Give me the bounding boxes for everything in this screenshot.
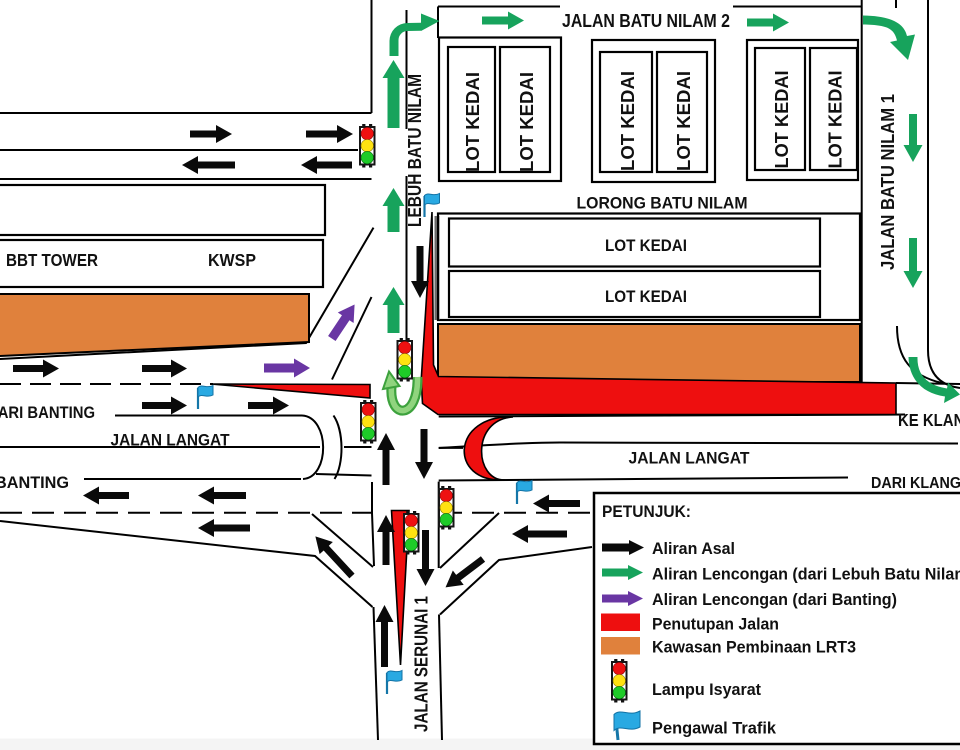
svg-text:Pengawal Trafik: Pengawal Trafik [652, 719, 777, 738]
svg-text:JALAN SERUNAI 1: JALAN SERUNAI 1 [412, 596, 432, 732]
svg-text:LEBUH BATU NILAM: LEBUH BATU NILAM [405, 74, 425, 227]
svg-text:JALAN LANGAT: JALAN LANGAT [629, 449, 751, 468]
svg-text:KE KLANG: KE KLANG [898, 410, 960, 430]
svg-text:LOT KEDAI: LOT KEDAI [517, 72, 537, 172]
svg-text:Aliran Lencongan (dari Lebuh B: Aliran Lencongan (dari Lebuh Batu Nilam) [652, 565, 960, 584]
svg-text:BANTING: BANTING [0, 473, 69, 492]
svg-text:Aliran Lencongan (dari Banting: Aliran Lencongan (dari Banting) [652, 590, 897, 609]
svg-text:Kawasan Pembinaan LRT3: Kawasan Pembinaan LRT3 [652, 638, 856, 657]
svg-text:PETUNJUK:: PETUNJUK: [602, 502, 691, 521]
svg-text:DARI KLANG: DARI KLANG [871, 475, 960, 492]
svg-text:JALAN BATU NILAM 1: JALAN BATU NILAM 1 [878, 94, 898, 270]
svg-text:LORONG BATU NILAM: LORONG BATU NILAM [577, 194, 748, 213]
svg-text:JALAN BATU NILAM 2: JALAN BATU NILAM 2 [562, 11, 730, 31]
svg-text:LOT KEDAI: LOT KEDAI [605, 236, 687, 255]
svg-text:BBT TOWER: BBT TOWER [6, 250, 98, 270]
svg-text:LOT KEDAI: LOT KEDAI [772, 71, 792, 169]
svg-text:Aliran Asal: Aliran Asal [652, 539, 735, 558]
svg-text:LOT KEDAI: LOT KEDAI [826, 71, 846, 169]
svg-text:Lampu Isyarat: Lampu Isyarat [652, 680, 761, 699]
svg-text:Penutupan Jalan: Penutupan Jalan [652, 615, 779, 634]
svg-text:LOT KEDAI: LOT KEDAI [463, 72, 483, 172]
svg-text:DARI BANTING: DARI BANTING [0, 404, 95, 422]
svg-text:LOT KEDAI: LOT KEDAI [618, 71, 638, 171]
svg-text:JALAN LANGAT: JALAN LANGAT [111, 431, 231, 450]
svg-text:LOT KEDAI: LOT KEDAI [674, 71, 694, 171]
svg-text:LOT KEDAI: LOT KEDAI [605, 287, 687, 306]
svg-text:KWSP: KWSP [208, 250, 256, 270]
